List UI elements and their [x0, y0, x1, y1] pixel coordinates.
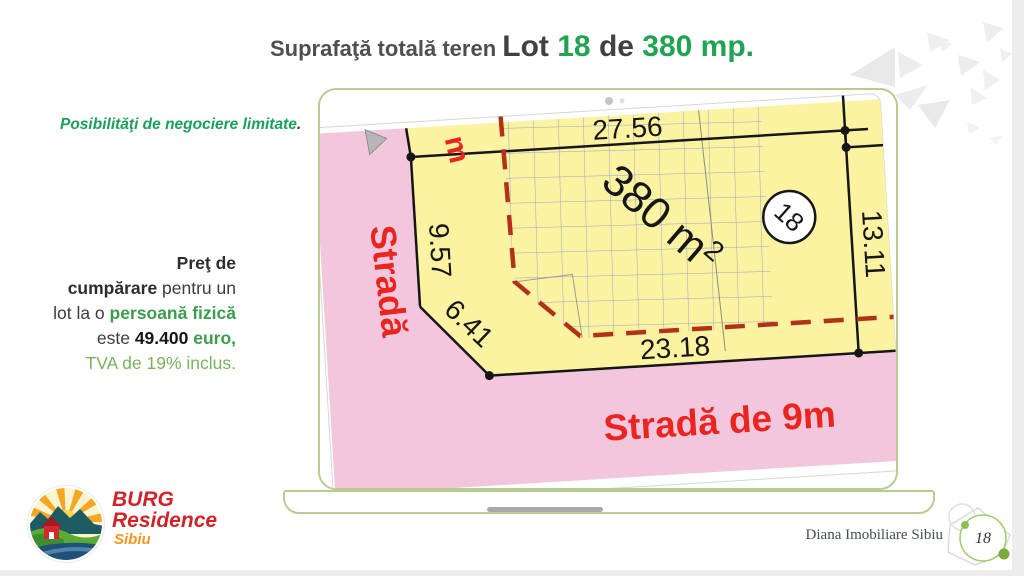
laptop-base — [283, 490, 935, 514]
dim-left: 9.57 — [423, 222, 457, 278]
logo-emblem — [26, 484, 106, 566]
laptop-notch — [487, 507, 603, 512]
dim-right: 13.11 — [856, 209, 891, 279]
laptop-screen: 27.56 9.57 6.41 23.18 13.11 380 m2 18 St… — [318, 88, 898, 490]
slide: Suprafaţă totală teren Lot 18 de 380 mp.… — [0, 0, 1024, 576]
price-line-3: lot la o persoană fizică — [18, 301, 236, 326]
page-number: 18 — [975, 530, 991, 547]
note-text: Posibilităţi de negociere limitate — [60, 116, 297, 133]
webcam-dot-small — [620, 99, 625, 104]
page-number-decoration: 18 — [930, 492, 1024, 576]
title-prefix: Suprafaţă totală teren — [270, 36, 502, 61]
page-title: Suprafaţă totală teren Lot 18 de 380 mp. — [0, 30, 1024, 64]
credit-text: Diana Imobiliare Sibiu — [806, 527, 943, 544]
green-dot-large-icon — [999, 549, 1010, 560]
price-line-1: Preţ de — [18, 251, 236, 276]
title-lot-number: 18 — [557, 30, 590, 63]
note-period: . — [297, 116, 301, 133]
price-block: Preţ de cumpărare pentru un lot la o per… — [18, 251, 236, 376]
price-line-5: TVA de 19% inclus. — [18, 351, 236, 376]
dim-top: 27.56 — [592, 111, 664, 146]
brand-name-line2: Residence — [112, 509, 217, 532]
title-area: 380 mp. — [642, 30, 754, 63]
price-line-2: cumpărare pentru un — [18, 276, 236, 301]
brand-name-line3: Sibiu — [114, 531, 151, 548]
brand-logo: BURG Residence Sibiu — [24, 484, 244, 576]
webcam-dot — [605, 97, 613, 105]
dim-bottom: 23.18 — [639, 330, 711, 365]
green-dot-icon — [961, 521, 969, 529]
cadastral-plan: 27.56 9.57 6.41 23.18 13.11 380 m2 18 St… — [320, 90, 896, 488]
title-connector: de — [591, 30, 643, 63]
negotiation-note: Posibilităţi de negociere limitate. — [60, 116, 301, 134]
title-lot-label: Lot — [502, 30, 557, 63]
price-line-4: este 49.400 euro, — [18, 326, 236, 351]
brand-name-line1: BURG — [112, 488, 174, 511]
